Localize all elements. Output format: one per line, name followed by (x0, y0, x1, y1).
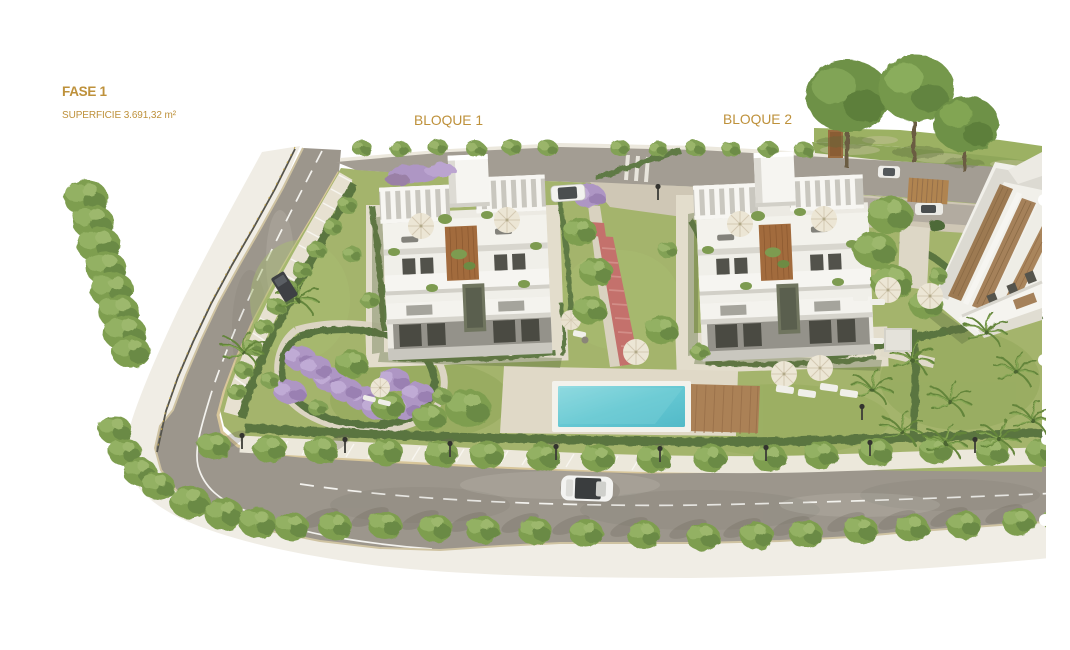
svg-text:SUPERFICIE 3.691,32 m²: SUPERFICIE 3.691,32 m² (62, 110, 177, 121)
svg-text:FASE 1: FASE 1 (62, 84, 108, 99)
svg-text:BLOQUE 2: BLOQUE 2 (723, 112, 792, 127)
svg-text:BLOQUE 1: BLOQUE 1 (414, 113, 483, 128)
